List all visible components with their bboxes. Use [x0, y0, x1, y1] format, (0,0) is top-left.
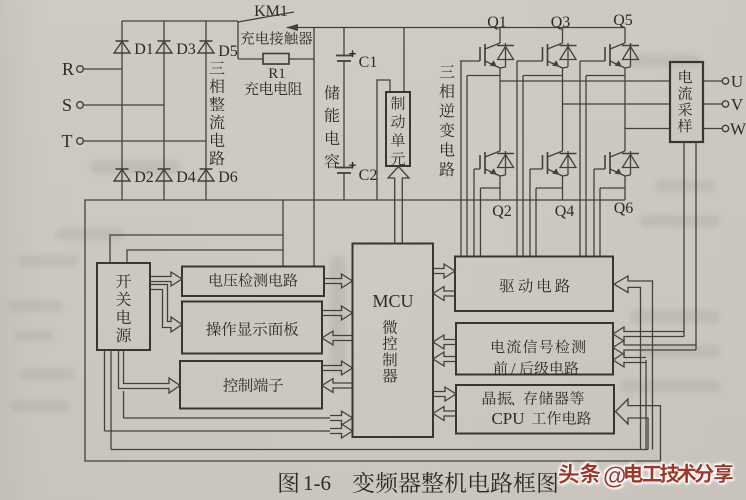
svg-text:T: T — [62, 131, 73, 151]
svg-text:R: R — [62, 59, 74, 79]
svg-text:D1: D1 — [134, 41, 154, 58]
svg-text:CPU: CPU — [491, 409, 524, 428]
svg-text:1-6: 1-6 — [303, 471, 331, 495]
svg-text:+: + — [349, 46, 357, 61]
svg-text:V: V — [731, 95, 744, 114]
svg-text:/: / — [511, 361, 516, 378]
svg-text:Q6: Q6 — [614, 200, 634, 217]
svg-text:D6: D6 — [218, 169, 238, 186]
svg-text:Q3: Q3 — [551, 14, 571, 31]
svg-text:W: W — [730, 120, 746, 139]
svg-text:MCU: MCU — [372, 291, 413, 311]
svg-text:Q1: Q1 — [487, 14, 507, 31]
svg-text:D3: D3 — [176, 41, 196, 58]
svg-text:U: U — [731, 72, 743, 91]
svg-text:D4: D4 — [176, 169, 196, 186]
svg-text:S: S — [62, 95, 72, 115]
svg-text:C1: C1 — [359, 54, 378, 71]
svg-text:R1: R1 — [268, 66, 286, 82]
svg-text:D2: D2 — [134, 169, 154, 186]
svg-text:KM1: KM1 — [254, 3, 288, 20]
svg-text:D5: D5 — [218, 43, 238, 60]
svg-text:@: @ — [603, 463, 626, 490]
svg-text:+: + — [349, 158, 357, 173]
svg-text:Q4: Q4 — [555, 203, 575, 220]
svg-text:C2: C2 — [359, 167, 378, 184]
svg-text:Q2: Q2 — [492, 203, 512, 220]
svg-text:Q5: Q5 — [613, 12, 633, 29]
